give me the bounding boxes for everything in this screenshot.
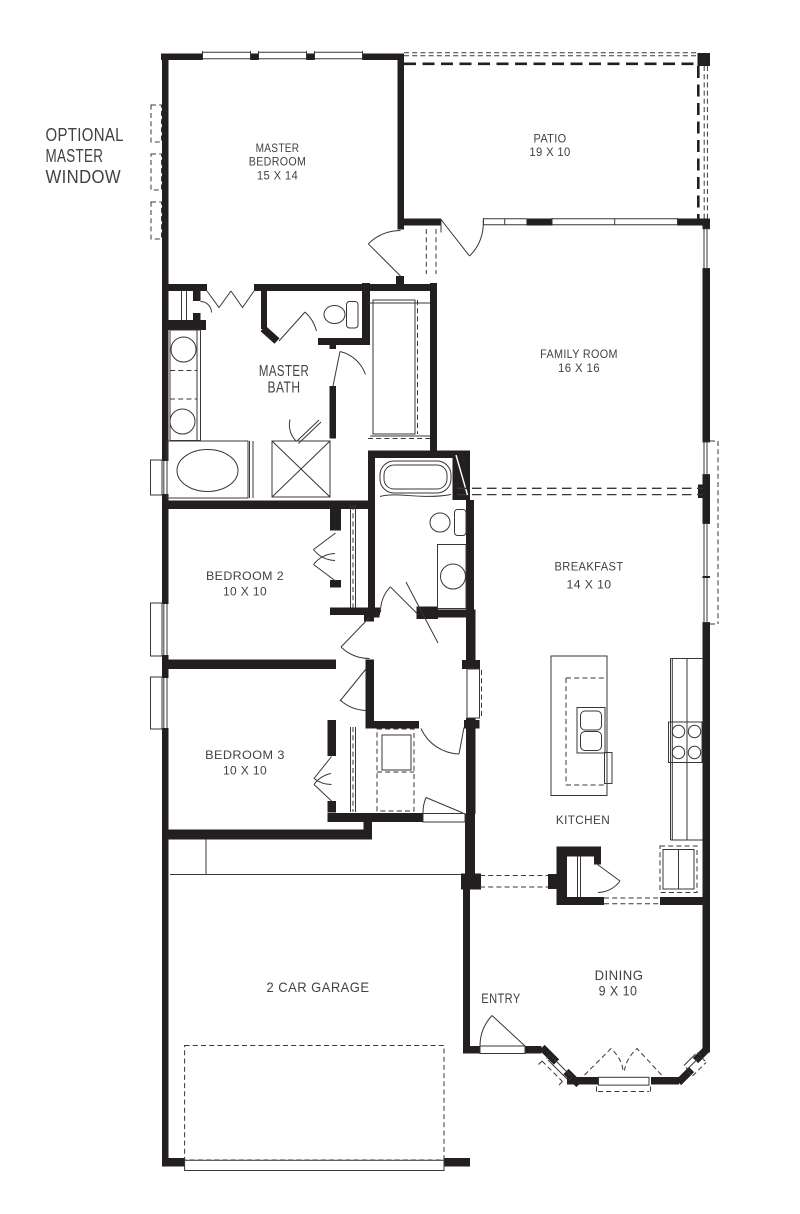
svg-text:14 X 10: 14 X 10 (567, 578, 612, 592)
svg-text:FAMILY ROOM: FAMILY ROOM (540, 347, 618, 361)
svg-text:BREAKFAST: BREAKFAST (555, 560, 624, 574)
svg-text:MASTER: MASTER (46, 145, 104, 166)
svg-text:16 X 16: 16 X 16 (558, 361, 600, 375)
svg-text:DINING: DINING (595, 968, 644, 983)
svg-text:BATH: BATH (268, 380, 301, 397)
svg-text:OPTIONAL: OPTIONAL (46, 124, 124, 145)
svg-text:BEDROOM 2: BEDROOM 2 (206, 569, 284, 583)
svg-text:BEDROOM 3: BEDROOM 3 (205, 748, 285, 762)
svg-text:KITCHEN: KITCHEN (556, 813, 610, 827)
svg-text:10 X 10: 10 X 10 (223, 585, 267, 599)
svg-text:PATIO: PATIO (534, 132, 567, 146)
svg-text:15 X 14: 15 X 14 (257, 169, 298, 183)
svg-text:19 X 10: 19 X 10 (529, 145, 570, 159)
svg-text:2 CAR GARAGE: 2 CAR GARAGE (267, 980, 370, 995)
svg-text:MASTER: MASTER (259, 363, 309, 380)
svg-text:WINDOW: WINDOW (46, 166, 122, 187)
svg-text:BEDROOM: BEDROOM (249, 155, 307, 169)
svg-text:MASTER: MASTER (256, 141, 300, 155)
svg-text:9 X 10: 9 X 10 (599, 984, 638, 999)
svg-text:10 X 10: 10 X 10 (223, 764, 267, 778)
svg-text:ENTRY: ENTRY (481, 991, 520, 1006)
